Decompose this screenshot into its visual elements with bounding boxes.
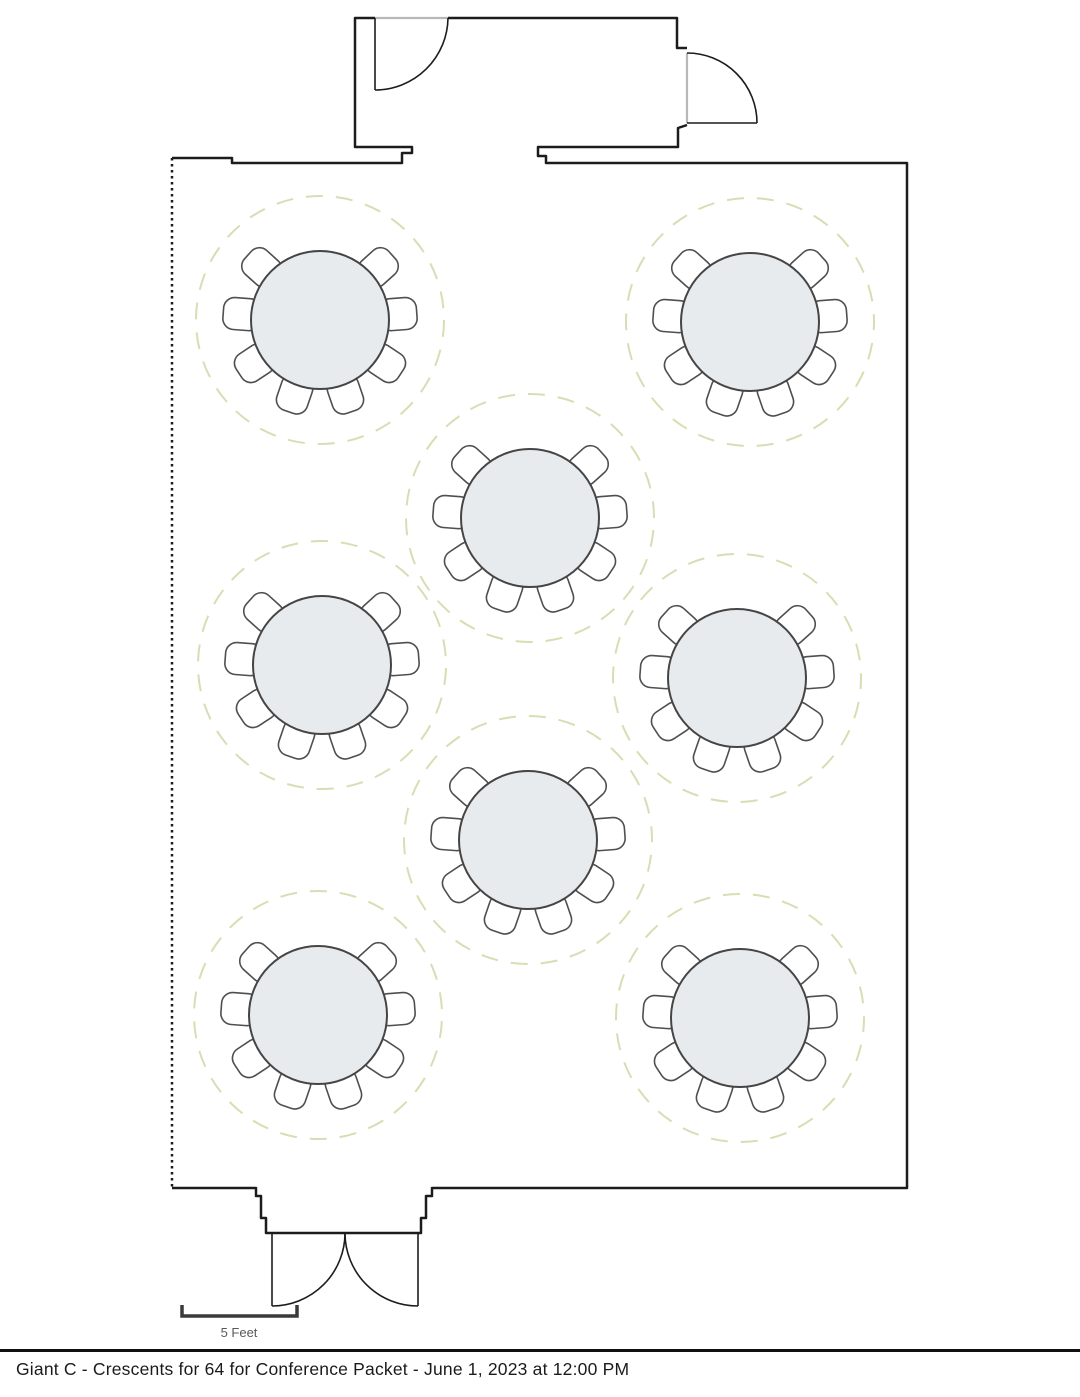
banquet-table-group	[613, 554, 861, 802]
banquet-table-group	[198, 541, 446, 789]
round-table	[253, 596, 391, 734]
caption-divider	[0, 1349, 1080, 1352]
round-table	[461, 449, 599, 587]
banquet-table-group	[406, 394, 654, 642]
floorplan-drawing: 5 Feet	[0, 0, 1080, 1397]
round-table	[681, 253, 819, 391]
banquet-table-group	[616, 894, 864, 1142]
floorplan-page: 5 Feet Giant C - Crescents for 64 for Co…	[0, 0, 1080, 1397]
door-openings	[375, 18, 687, 123]
round-table	[668, 609, 806, 747]
scale-label: 5 Feet	[221, 1325, 258, 1340]
scale-bar: 5 Feet	[182, 1305, 297, 1340]
vestibule-right-door	[687, 53, 757, 123]
scale-bar-bracket	[182, 1305, 297, 1316]
banquet-table-group	[626, 198, 874, 446]
round-table	[249, 946, 387, 1084]
round-table	[251, 251, 389, 389]
banquet-table-group	[194, 891, 442, 1139]
door-swing-arc-right	[345, 1233, 418, 1306]
bottom-double-door	[272, 1233, 418, 1306]
caption-text: Giant C - Crescents for 64 for Conferenc…	[16, 1359, 629, 1380]
door-swing-arc	[375, 18, 448, 90]
tables-layer	[194, 196, 874, 1142]
banquet-table-group	[196, 196, 444, 444]
round-table	[459, 771, 597, 909]
banquet-table-group	[404, 716, 652, 964]
round-table	[671, 949, 809, 1087]
vestibule-top-door	[375, 18, 448, 90]
door-swing-arc-left	[272, 1233, 345, 1306]
door-swing-arc	[687, 53, 757, 123]
